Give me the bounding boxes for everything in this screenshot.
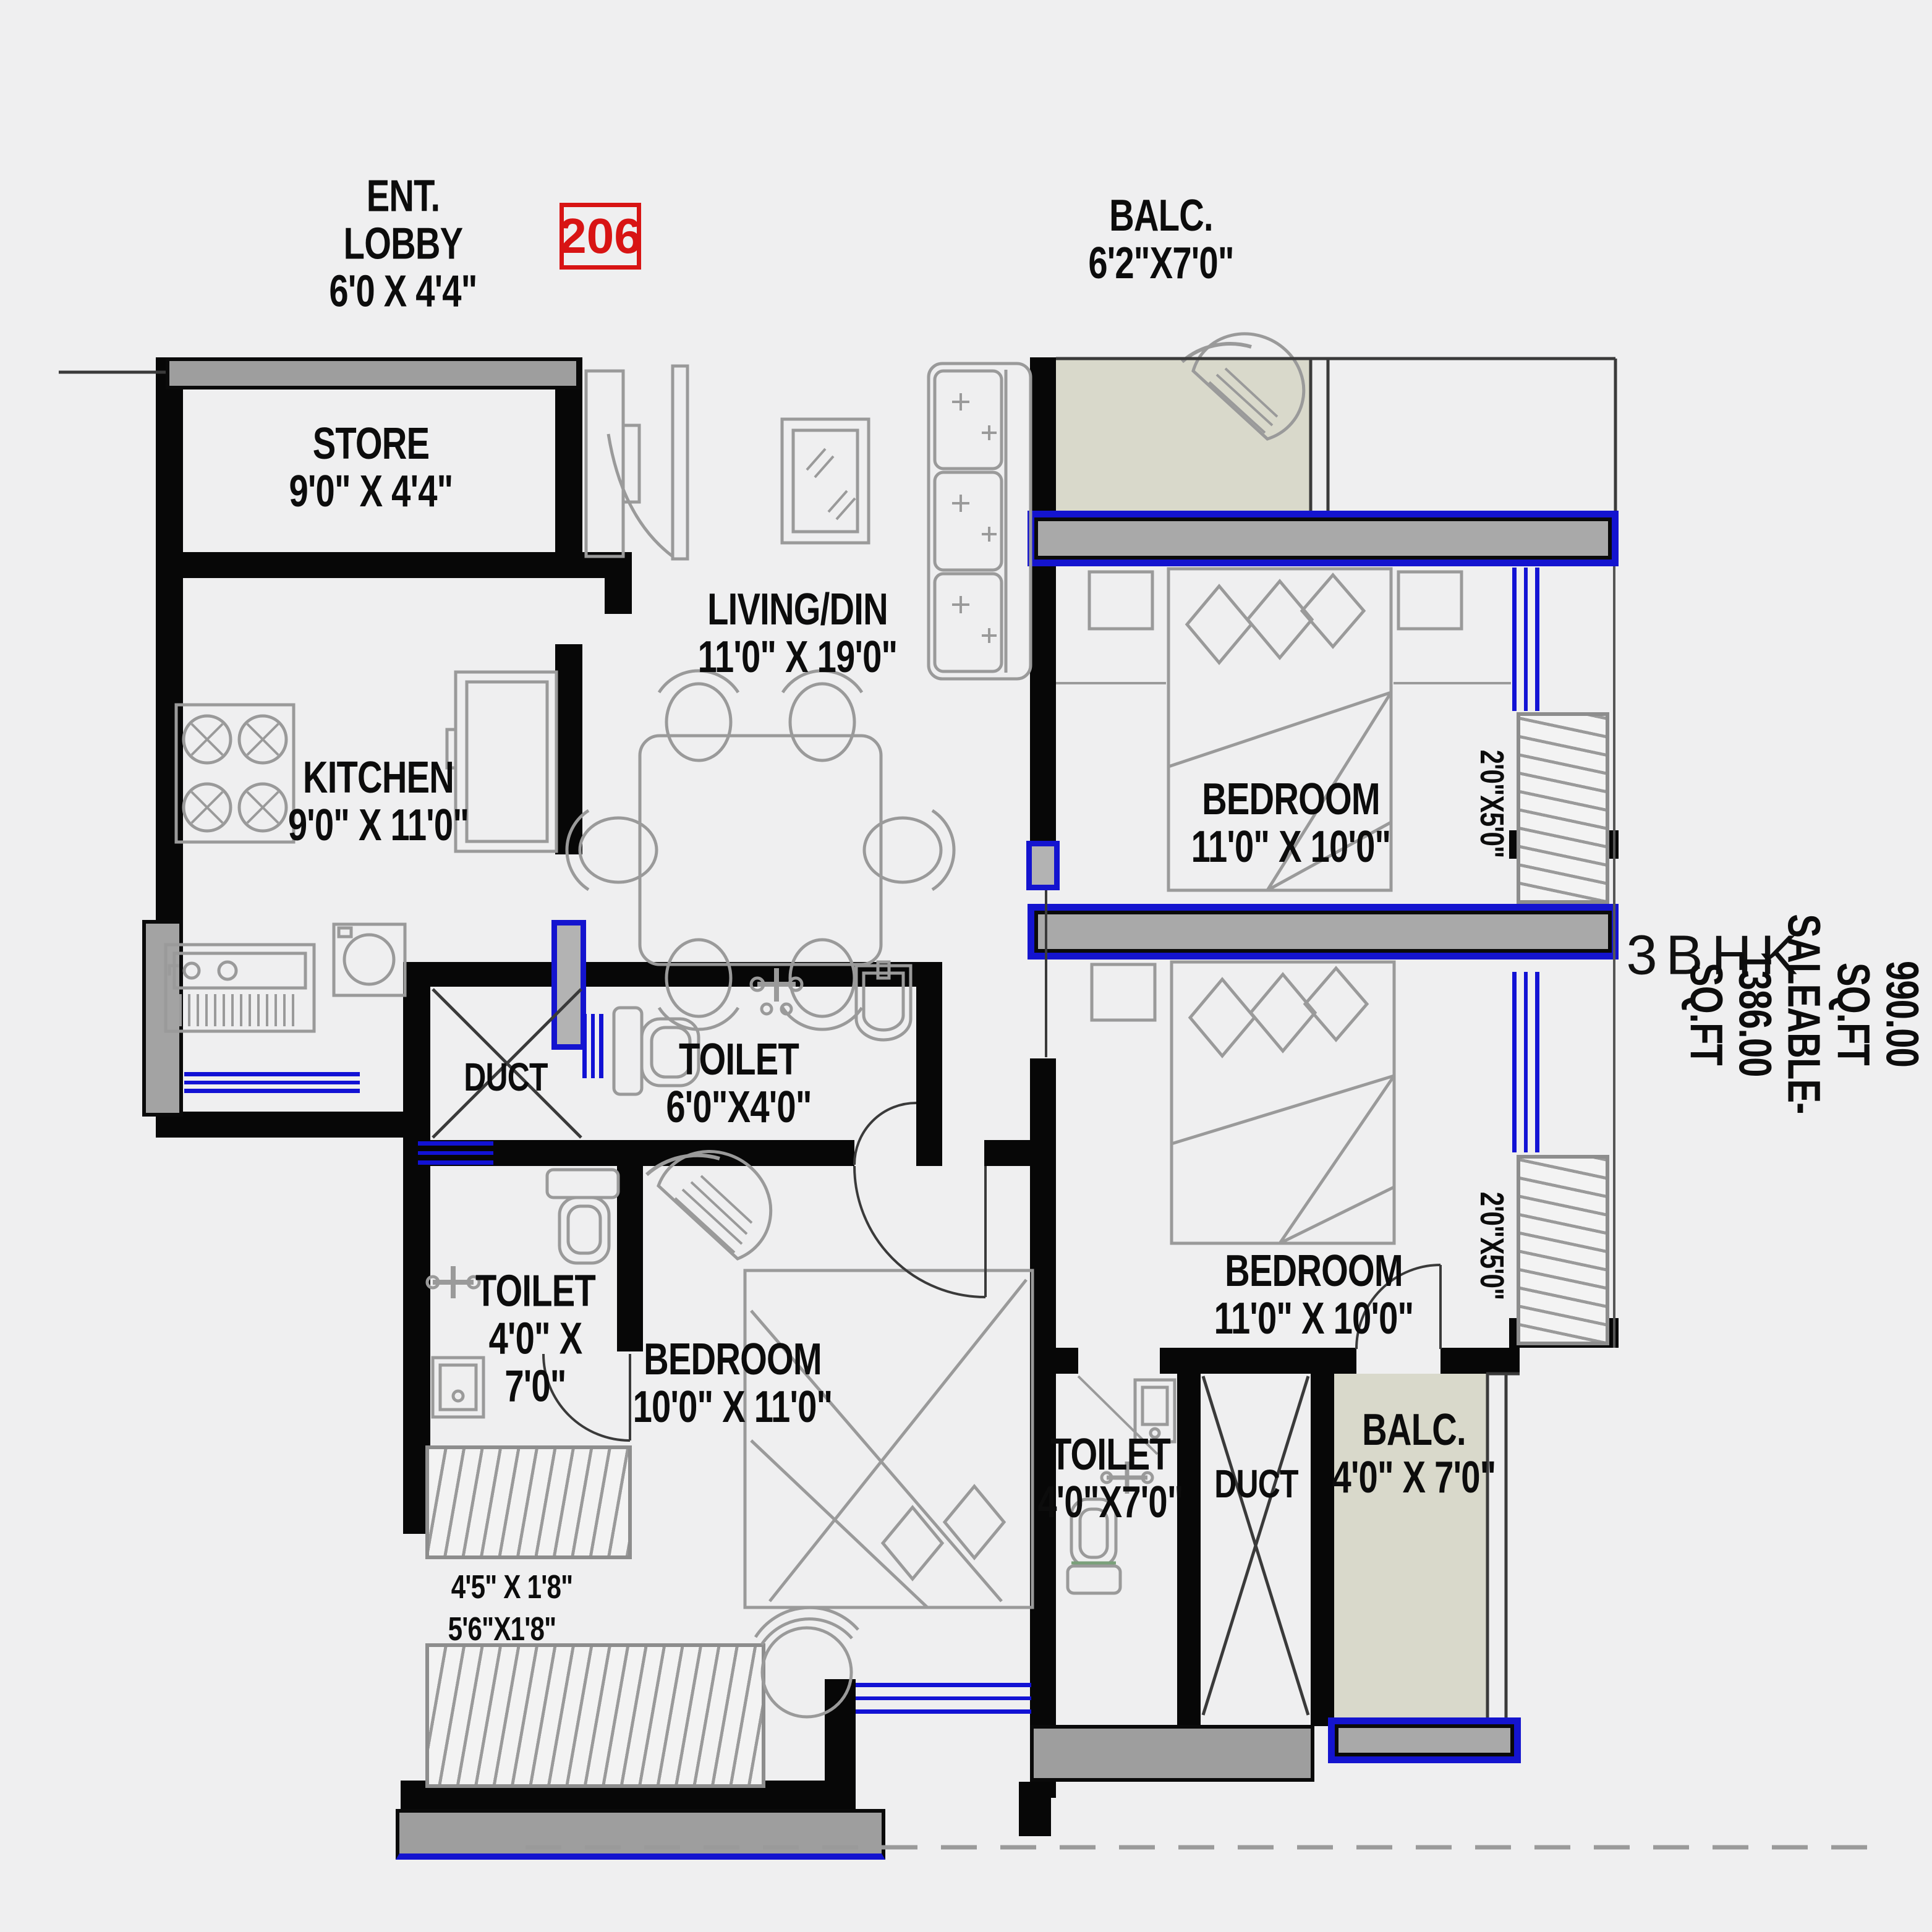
chair [762, 1628, 851, 1717]
mirror [782, 419, 869, 543]
wc-mid [614, 1008, 642, 1094]
label-balcony-br: BALC. 4'0" X 7'0" [1332, 1406, 1496, 1502]
label-wardrobe4: 5'6"X1'8" [448, 1612, 556, 1648]
tv-unit [586, 371, 623, 556]
label-bedroom1: BEDROOM 11'0" X 10'0" [1191, 776, 1391, 871]
label-toilet-mid: TOILET 6'0"X4'0" [666, 1036, 811, 1131]
floor-plan: ENT. LOBBY 6'0 X 4'4" 206 BALC. 6'2"X7'0… [0, 0, 1932, 1932]
label-bedroom3: BEDROOM 10'0" X 11'0" [633, 1336, 833, 1431]
label-kitchen: KITCHEN 9'0" X 11'0" [288, 754, 469, 849]
area-statement: CARPET-990.00 SQ.FT SALEABLE-1386.00 SQ.… [1682, 914, 1932, 1113]
wc-left [547, 1170, 618, 1198]
bed-3 [745, 1270, 1032, 1607]
toilet-mid-door-swing [854, 1103, 916, 1165]
dining-table [640, 736, 881, 964]
entry-door-leaf [673, 366, 687, 559]
label-ent-lobby: ENT. LOBBY 6'0 X 4'4" [329, 172, 477, 315]
label-balcony-top: BALC. 6'2"X7'0" [1088, 192, 1233, 287]
label-duct-upper: DUCT [464, 1056, 548, 1098]
label-living: LIVING/DIN 11'0" X 19'0" [698, 586, 898, 681]
planter [1193, 334, 1304, 439]
label-wardrobe3: 4'5" X 1'8" [451, 1570, 573, 1606]
label-wardrobe1: 2'0"X5'0" [1473, 750, 1509, 858]
label-duct-lower: DUCT [1214, 1463, 1298, 1505]
label-bedroom2: BEDROOM 11'0" X 10'0" [1214, 1248, 1414, 1343]
label-wardrobe2: 2'0"X5'0" [1473, 1192, 1509, 1300]
bedroom3-door-swing [854, 1166, 985, 1297]
label-store: STORE 9'0" X 4'4" [289, 420, 453, 516]
unit-number-badge: 206 [560, 203, 641, 270]
label-toilet-left: TOILET 4'0" X 7'0" [475, 1267, 595, 1410]
kitchen-counter [456, 672, 556, 851]
sofa [929, 364, 1031, 679]
label-toilet-br: TOILET 4'0"X7'0" [1037, 1431, 1183, 1526]
